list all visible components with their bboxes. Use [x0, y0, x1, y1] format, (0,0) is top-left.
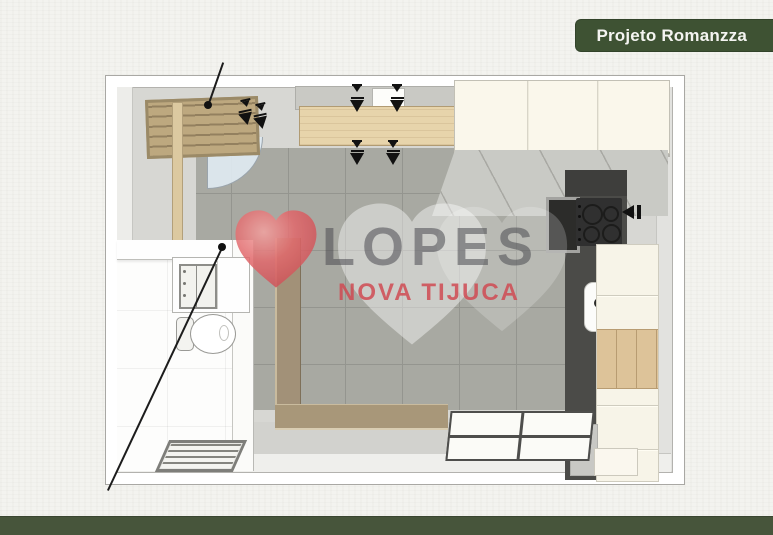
burner-icon	[602, 224, 621, 243]
watermark-subtitle: NOVA TIJUCA	[338, 281, 520, 305]
burner-icon	[603, 206, 619, 222]
wood-floor-border-horizontal	[275, 404, 448, 430]
wood-door-jamb	[172, 102, 183, 244]
ceiling-marker-icon	[392, 84, 402, 92]
knob-icon	[578, 228, 581, 231]
faucet-dot-icon	[183, 294, 186, 297]
knob-icon	[578, 215, 581, 218]
footer-green-bar	[0, 516, 773, 535]
burner-icon	[582, 204, 603, 225]
ceiling-marker-icon	[386, 150, 400, 165]
cabinet-step-white	[594, 448, 638, 476]
left-arrow-icon	[622, 205, 634, 219]
faucet-dot-icon	[183, 282, 186, 285]
tall-cabinet-column	[596, 244, 659, 482]
ceiling-marker-icon	[238, 109, 255, 127]
knob-icon	[578, 238, 581, 241]
project-badge-label: Projeto Romanzza	[596, 26, 747, 46]
window-pane	[448, 438, 519, 460]
cooktop	[576, 198, 622, 246]
leader-dot	[218, 243, 226, 251]
cabinet-divider	[597, 295, 658, 296]
floor-drain-grate	[155, 440, 247, 472]
window-pane	[522, 413, 593, 435]
vanity-divider	[217, 261, 218, 309]
ceiling-marker-icon	[253, 113, 270, 131]
knob-icon	[578, 205, 581, 208]
ceiling-marker-icon	[352, 84, 362, 92]
upper-cabinets	[454, 80, 670, 154]
ceiling-marker-icon	[352, 140, 362, 148]
screenshot-canvas: LOPES NOVA TIJUCA Projeto Romanzza	[0, 0, 773, 535]
ceiling-marker-icon	[390, 97, 404, 112]
left-arrow-bar-icon	[637, 205, 641, 219]
window-pane	[519, 438, 590, 460]
wood-counter-top	[299, 106, 458, 146]
window-pane	[450, 413, 521, 435]
ceiling-marker-icon	[350, 97, 364, 112]
ceiling-marker-icon	[350, 150, 364, 165]
red-heart-icon	[230, 206, 322, 292]
floor-window	[445, 411, 594, 461]
burner-icon	[583, 226, 600, 243]
watermark-brand: LOPES	[322, 220, 540, 274]
cabinet-divider	[527, 81, 528, 153]
ceiling-marker-icon	[388, 140, 398, 148]
project-badge: Projeto Romanzza	[575, 19, 773, 52]
faucet-dot-icon	[183, 270, 186, 273]
leader-dot	[204, 101, 212, 109]
wood-cabinet-insert	[597, 329, 658, 389]
cabinet-divider	[597, 81, 598, 153]
toilet-bowl	[190, 314, 236, 354]
cabinet-divider	[597, 405, 658, 406]
